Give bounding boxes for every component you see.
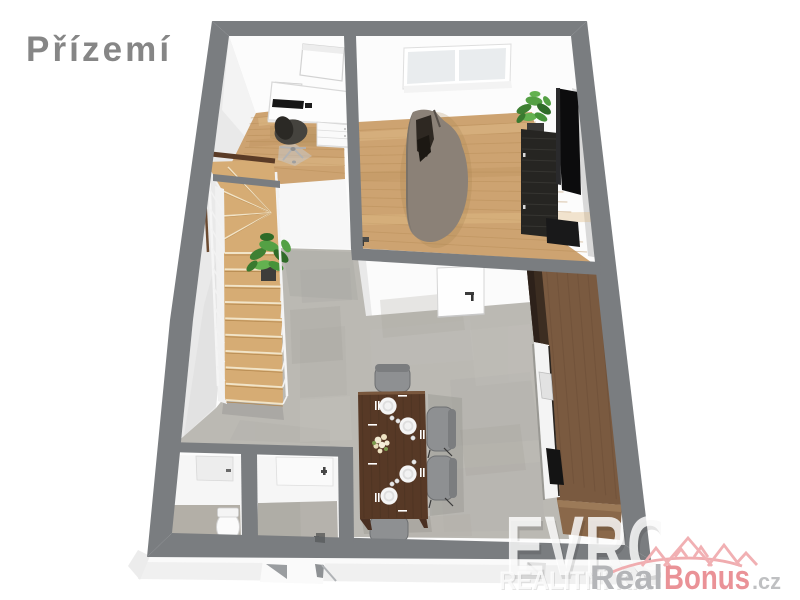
svg-text:Real: Real [590, 559, 663, 597]
svg-text:Bonus: Bonus [664, 559, 750, 597]
svg-text:Přízemí: Přízemí [26, 30, 172, 69]
svg-text:.cz: .cz [752, 569, 781, 594]
